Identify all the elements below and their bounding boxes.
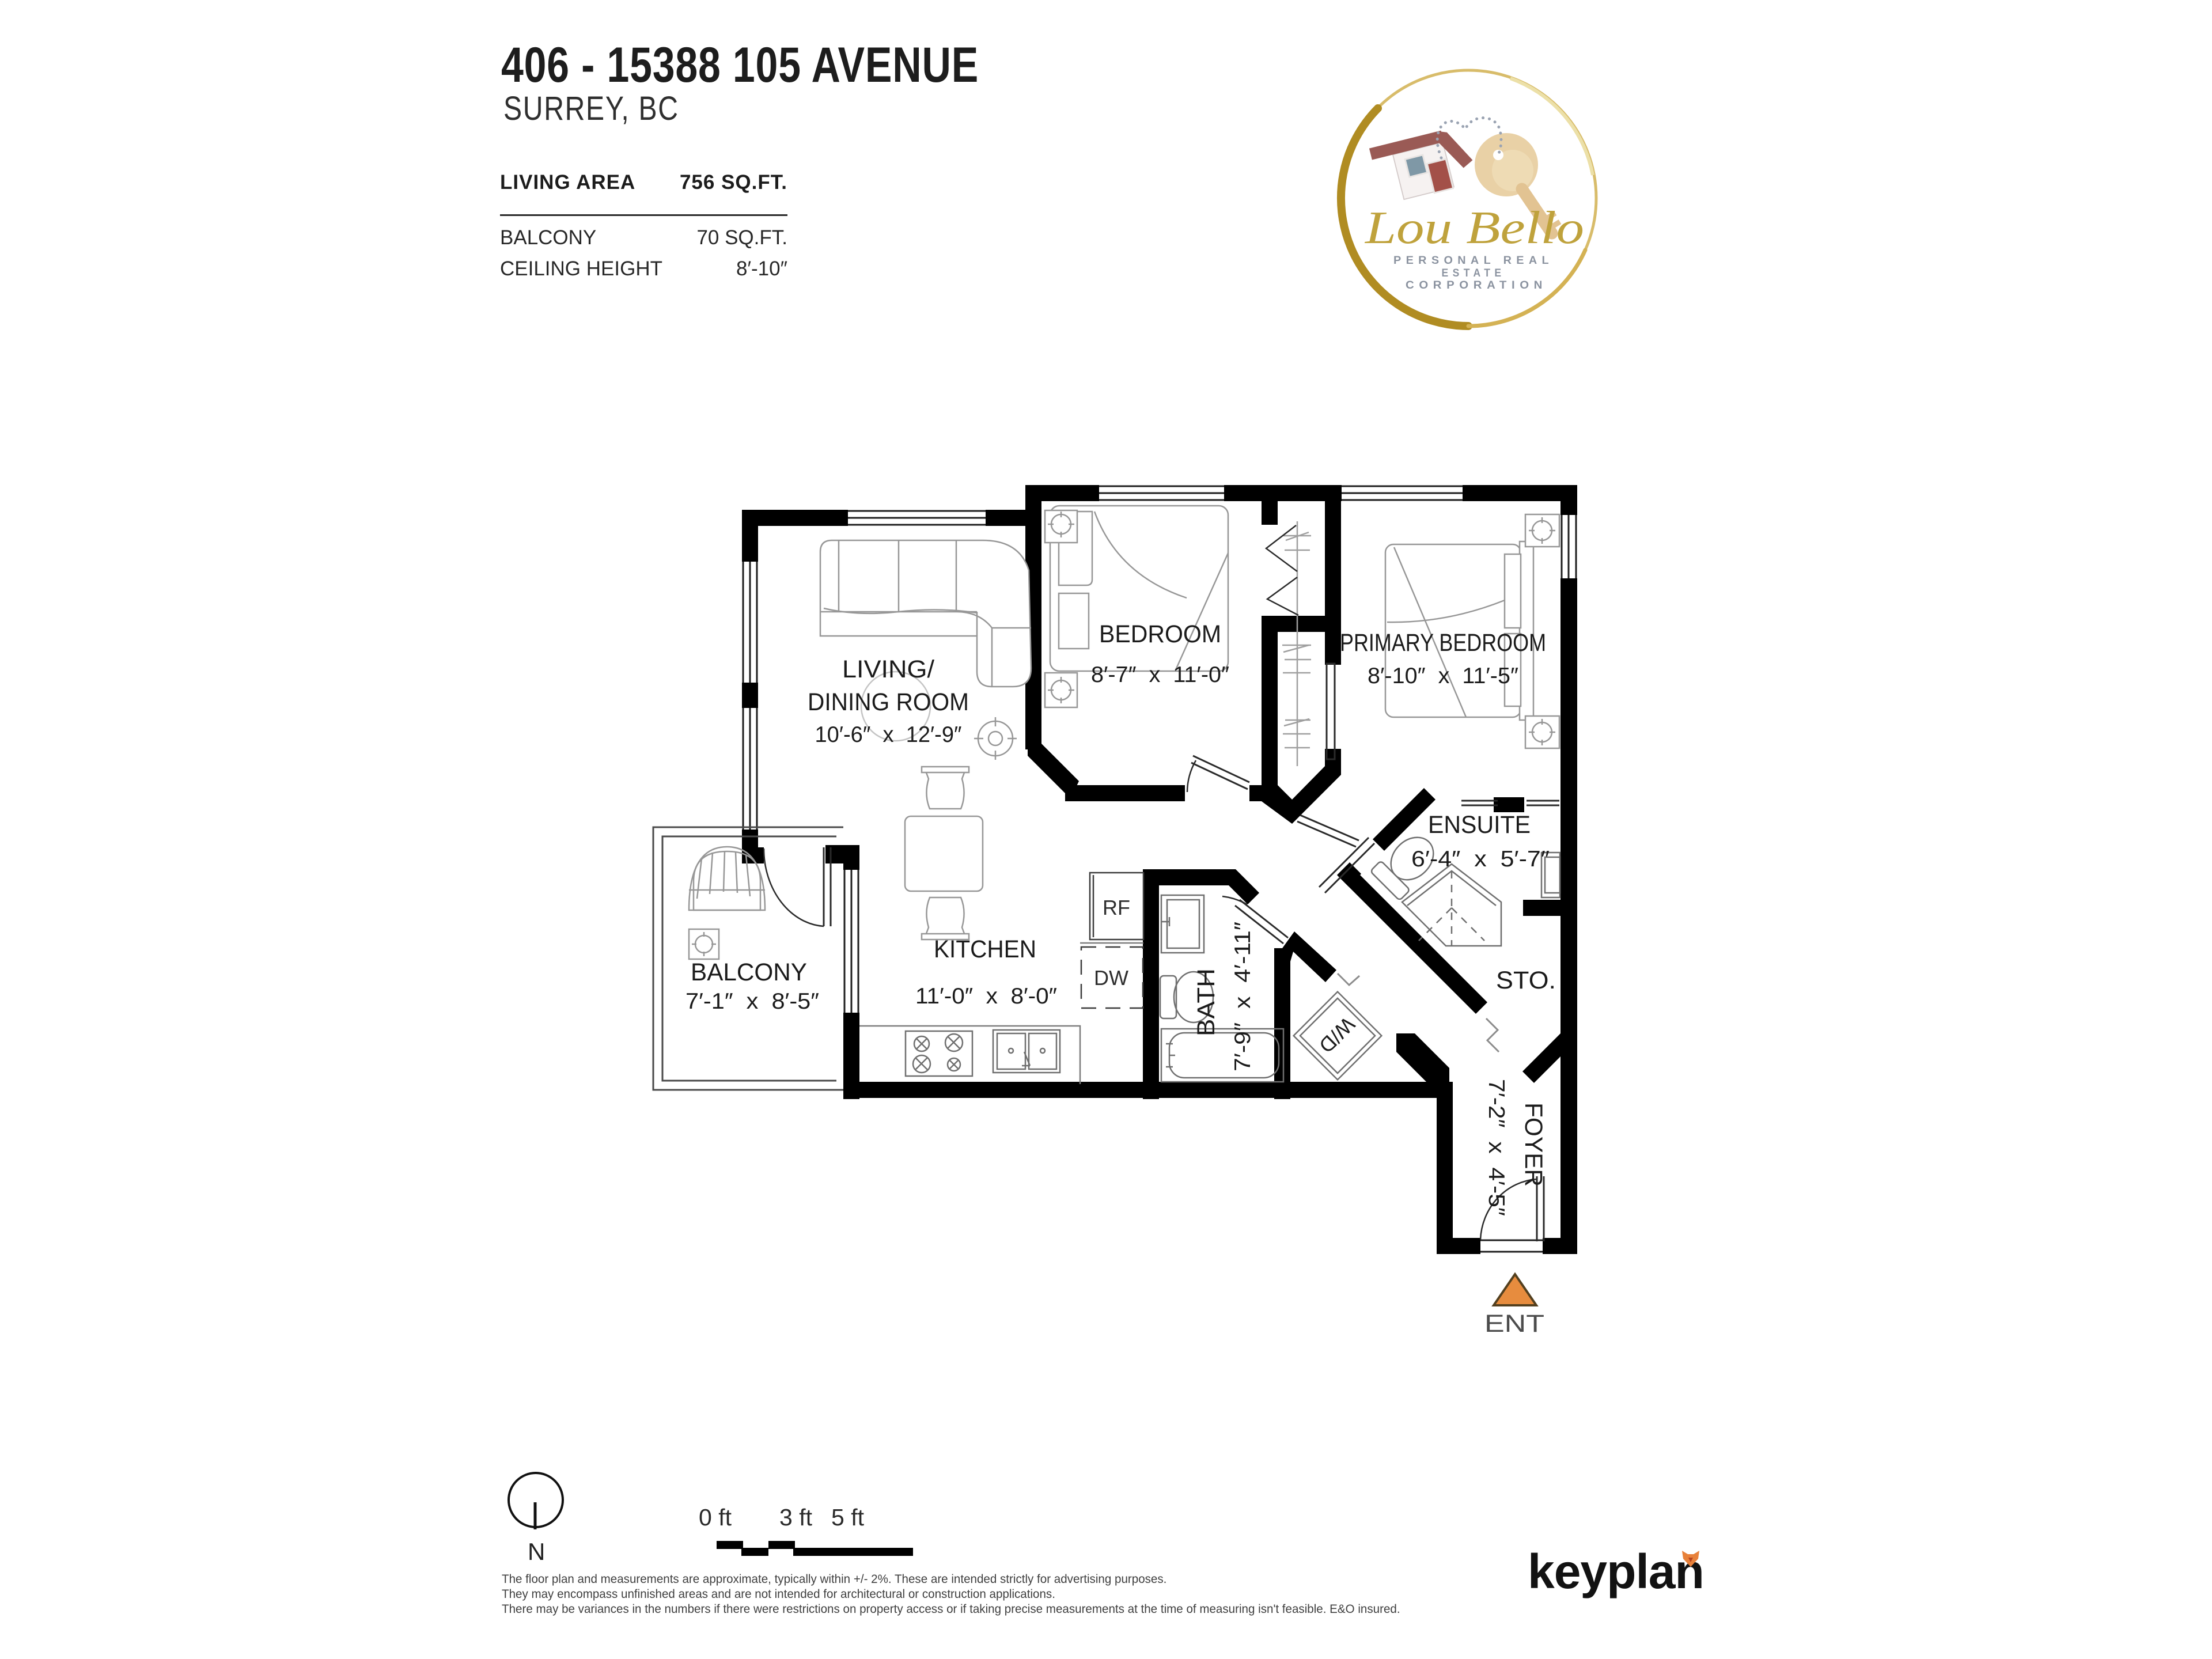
svg-text:11′-0″ x 8′-0″: 11′-0″ x 8′-0″: [915, 984, 1057, 1009]
svg-text:BATH: BATH: [1192, 968, 1220, 1036]
svg-text:3 ft: 3 ft: [779, 1504, 813, 1531]
svg-text:8′-7″ x 11′-0″: 8′-7″ x 11′-0″: [1091, 662, 1229, 687]
svg-text:6′-4″ x 5′-7″: 6′-4″ x 5′-7″: [1411, 847, 1550, 872]
svg-text:7′-1″ x 8′-5″: 7′-1″ x 8′-5″: [685, 989, 819, 1014]
svg-text:7′-2″ x 4′-5″: 7′-2″ x 4′-5″: [1484, 1079, 1509, 1216]
svg-text:0 ft: 0 ft: [699, 1504, 732, 1531]
svg-text:7′-9″ x 4′-11″: 7′-9″ x 4′-11″: [1230, 922, 1255, 1071]
svg-text:5 ft: 5 ft: [831, 1504, 865, 1531]
svg-text:10′-6″ x 12′-9″: 10′-6″ x 12′-9″: [815, 722, 962, 747]
svg-text:PRIMARY BEDROOM: PRIMARY BEDROOM: [1340, 629, 1546, 657]
svg-text:BEDROOM: BEDROOM: [1099, 620, 1221, 648]
svg-text:DINING ROOM: DINING ROOM: [808, 688, 969, 716]
svg-text:BALCONY: BALCONY: [691, 959, 807, 986]
svg-text:ENSUITE: ENSUITE: [1428, 811, 1531, 839]
svg-text:FOYER: FOYER: [1520, 1103, 1547, 1187]
svg-text:STO.: STO.: [1496, 967, 1556, 994]
svg-text:RF: RF: [1103, 896, 1130, 919]
svg-text:KITCHEN: KITCHEN: [934, 935, 1036, 963]
svg-text:ENT: ENT: [1484, 1310, 1544, 1338]
svg-text:8′-10″ x 11′-5″: 8′-10″ x 11′-5″: [1368, 664, 1518, 688]
svg-text:LIVING/: LIVING/: [842, 656, 934, 683]
svg-text:N: N: [528, 1538, 545, 1565]
svg-text:DW: DW: [1094, 966, 1128, 990]
